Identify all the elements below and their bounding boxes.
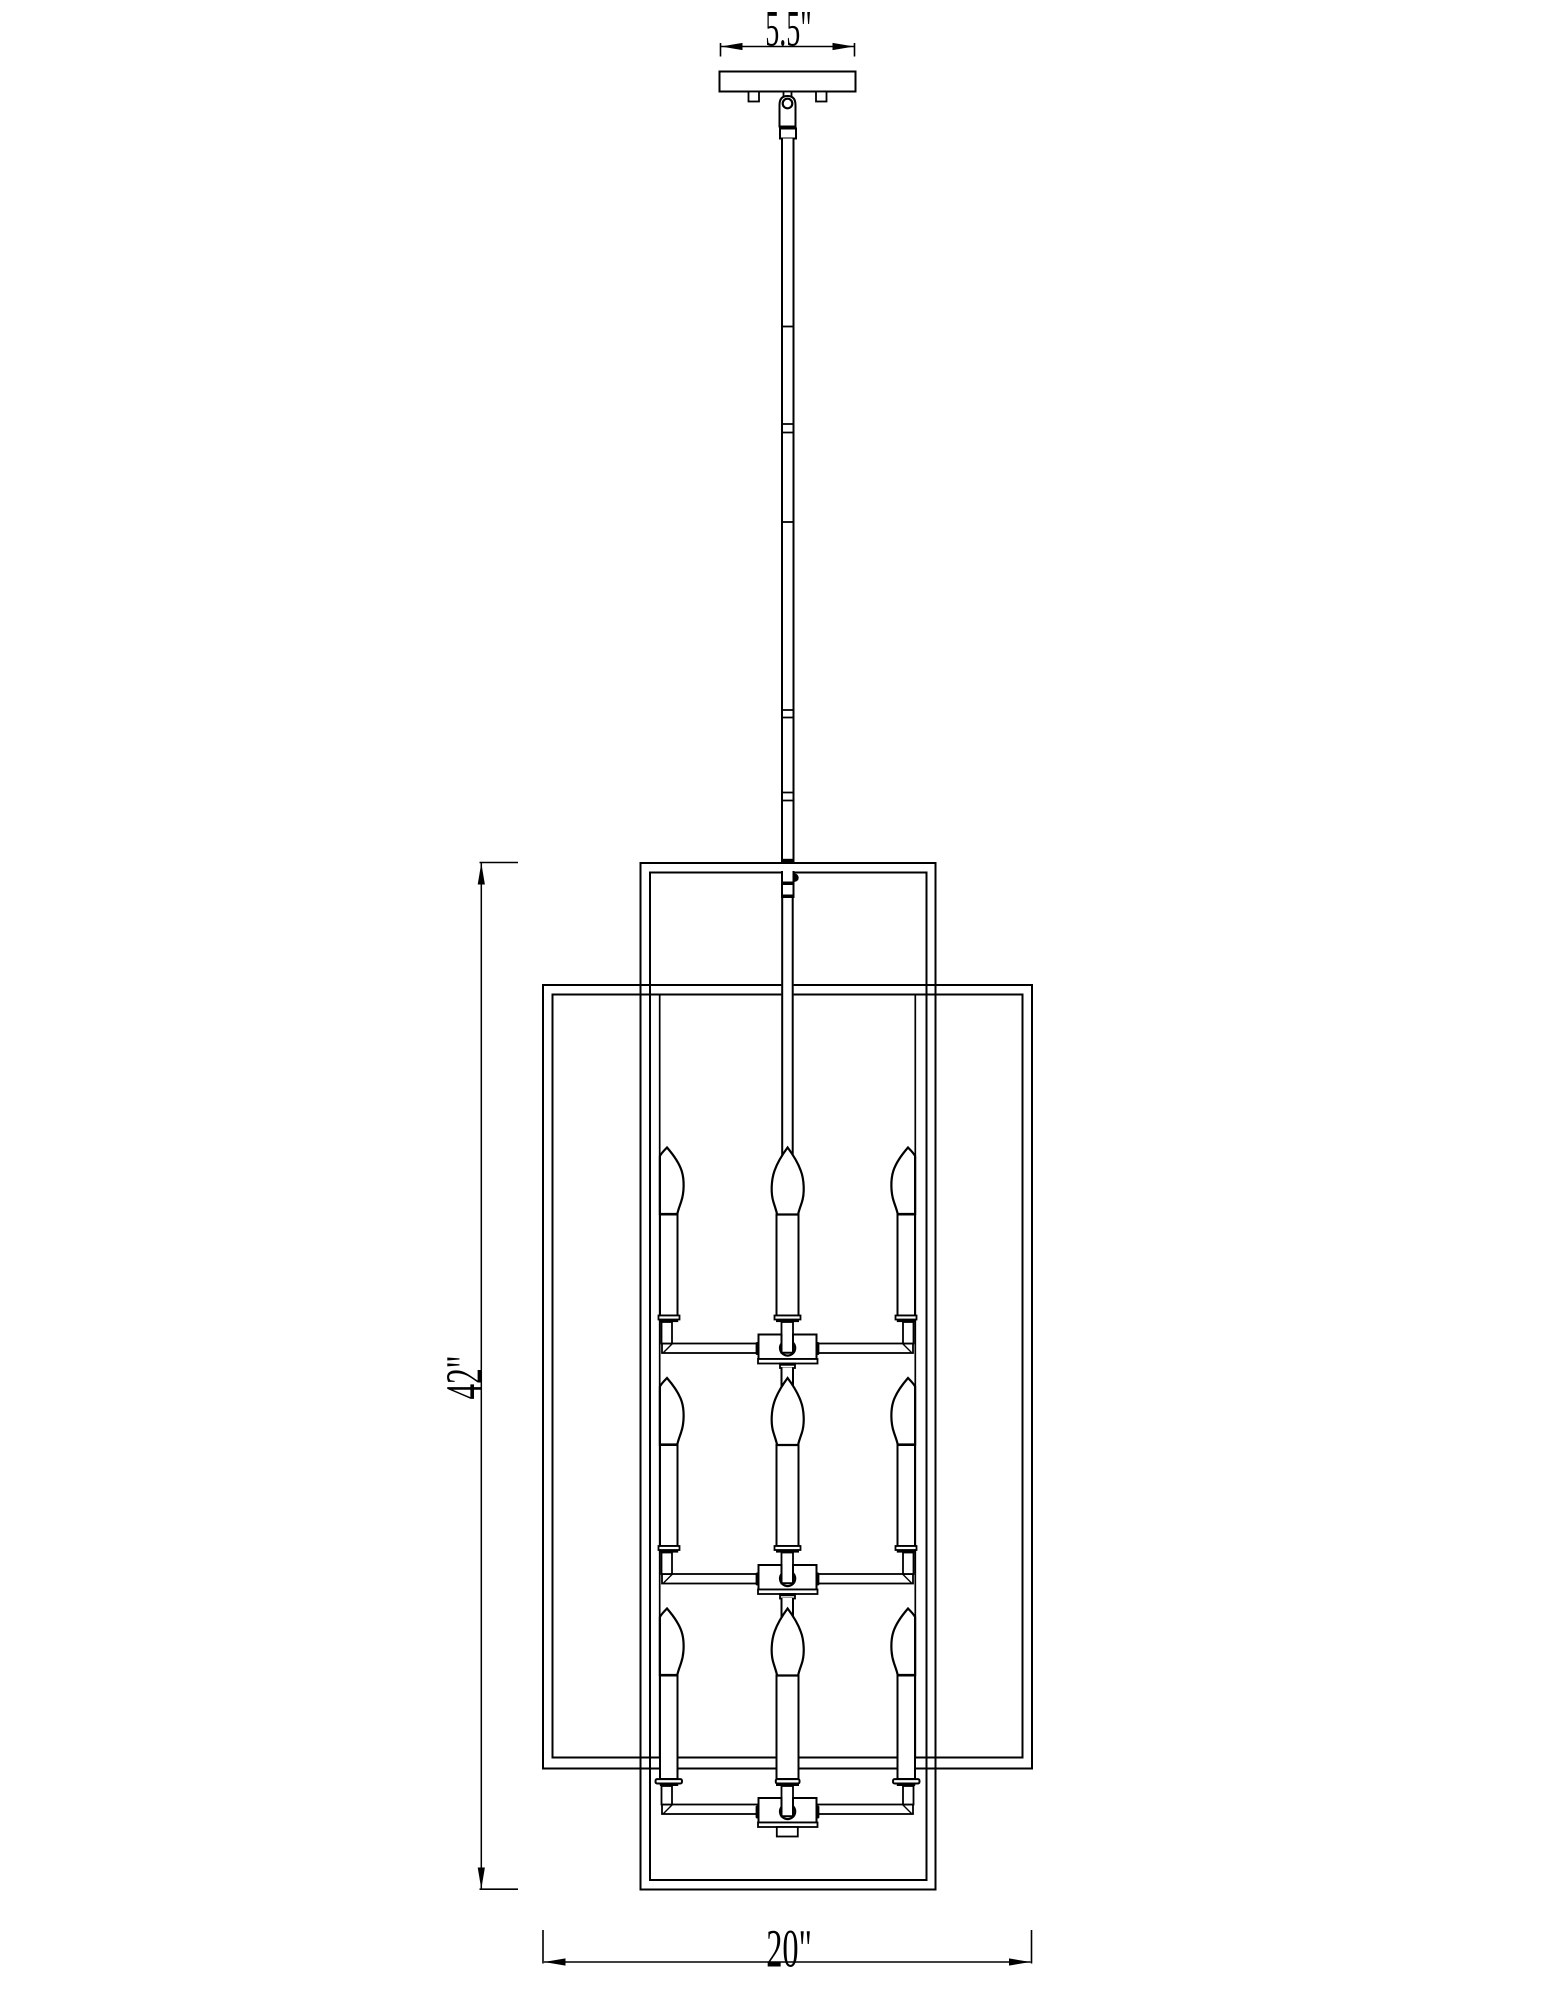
svg-text:20": 20" (766, 1918, 812, 1979)
svg-text:42": 42" (437, 1356, 494, 1400)
svg-text:5.5": 5.5" (765, 0, 812, 57)
